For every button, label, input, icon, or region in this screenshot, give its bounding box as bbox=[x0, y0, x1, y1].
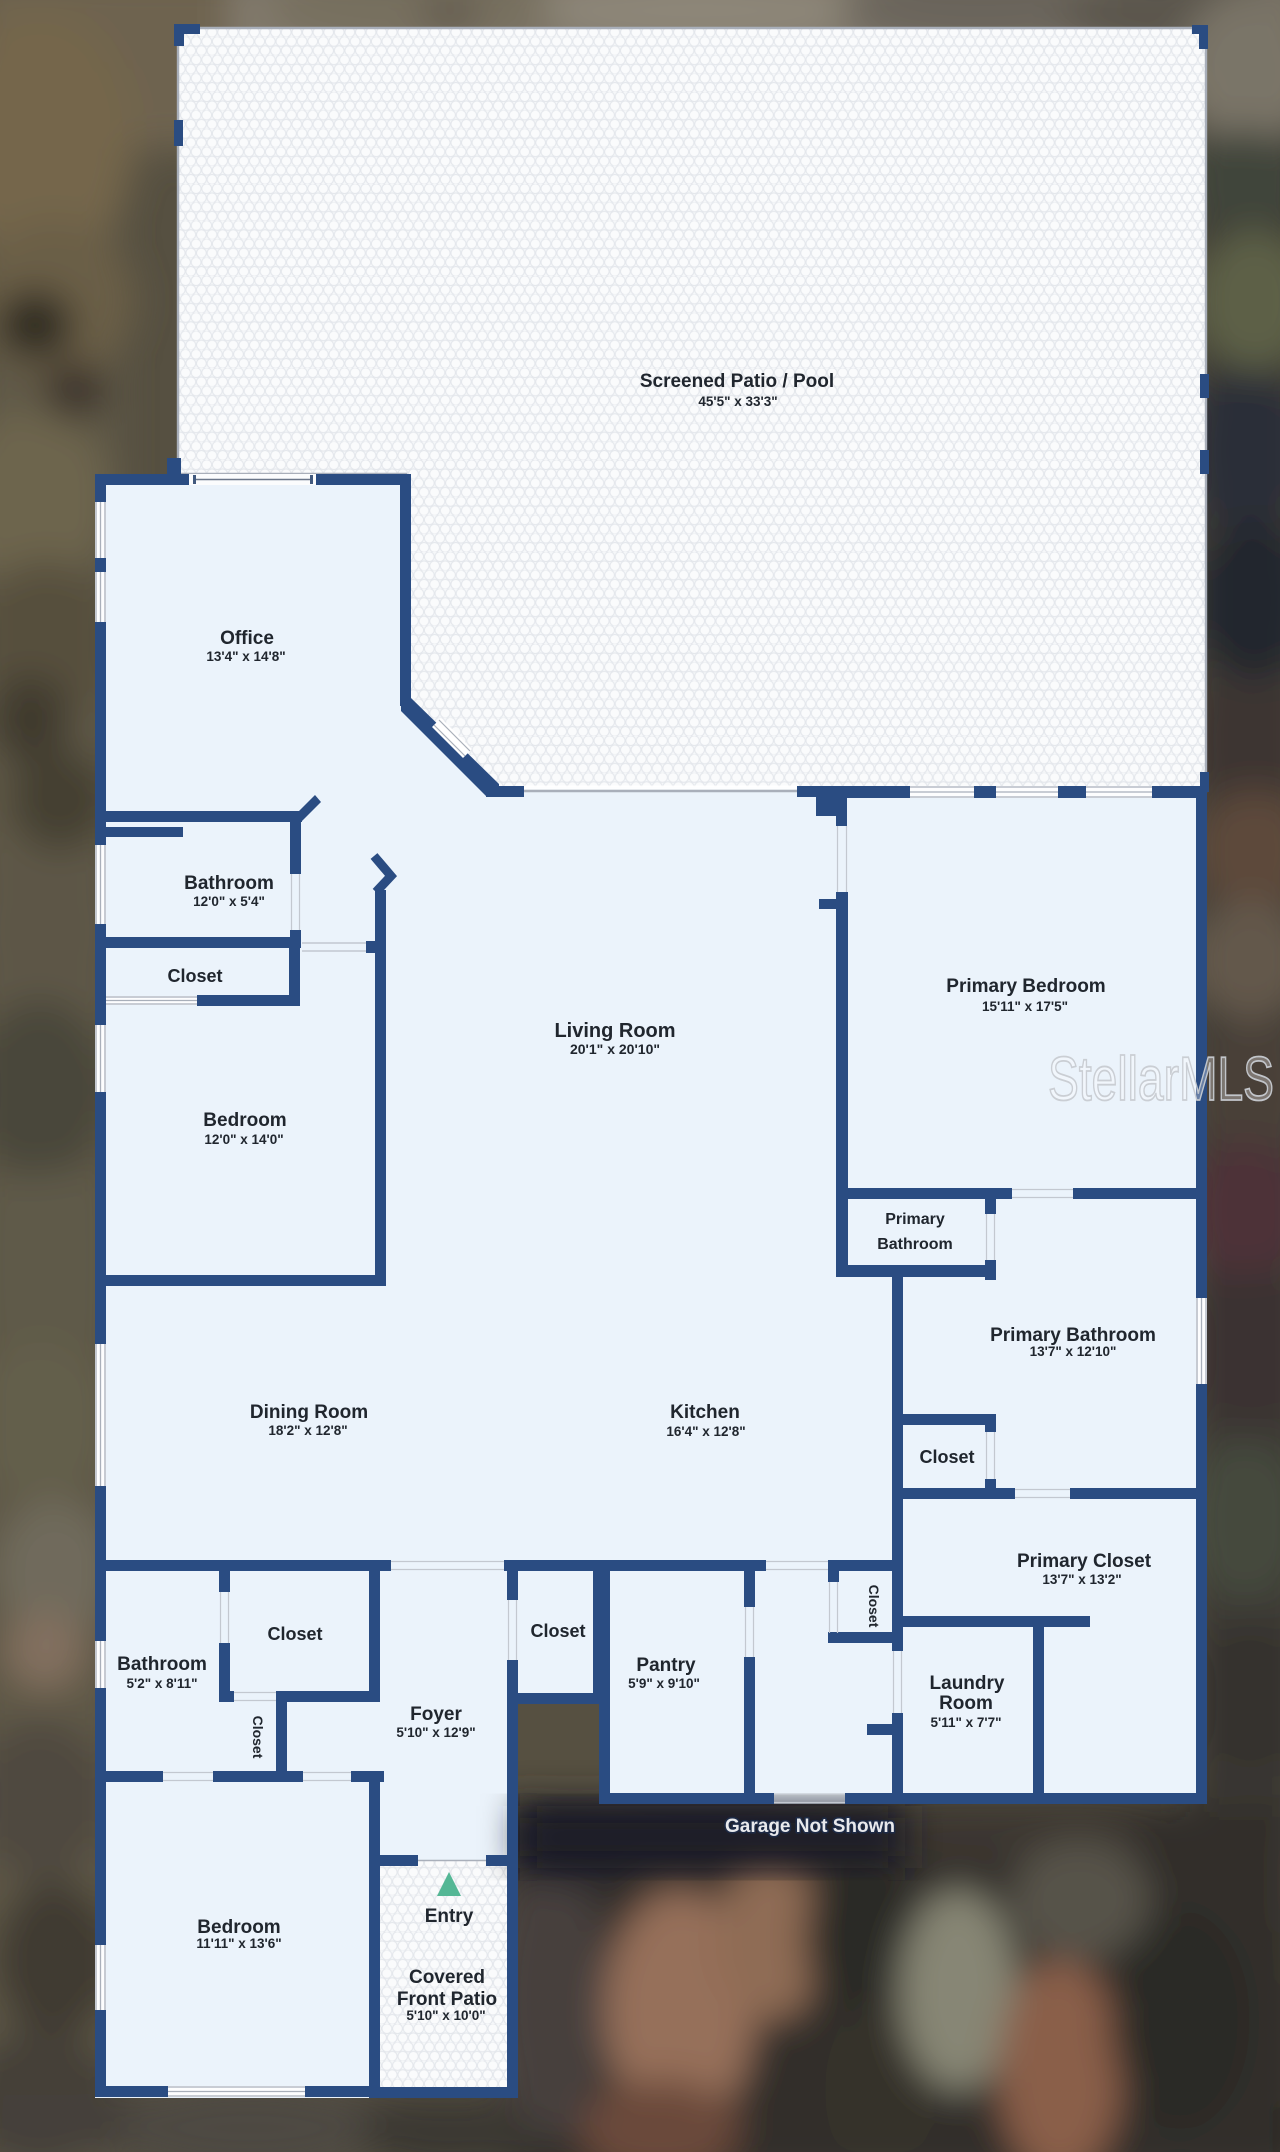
svg-text:Closet: Closet bbox=[167, 966, 222, 986]
svg-text:15'11" x 17'5": 15'11" x 17'5" bbox=[982, 999, 1068, 1014]
svg-text:13'7" x 13'2": 13'7" x 13'2" bbox=[1042, 1572, 1121, 1587]
svg-text:16'4" x 12'8": 16'4" x 12'8" bbox=[666, 1424, 745, 1439]
svg-text:Pantry: Pantry bbox=[636, 1655, 696, 1676]
svg-text:Closet: Closet bbox=[267, 1624, 322, 1644]
svg-text:Garage Not Shown: Garage Not Shown bbox=[725, 1816, 895, 1837]
svg-text:5'9" x 9'10": 5'9" x 9'10" bbox=[628, 1676, 700, 1691]
svg-text:Primary Bedroom: Primary Bedroom bbox=[946, 976, 1105, 997]
svg-text:Front Patio: Front Patio bbox=[397, 1989, 497, 2010]
svg-text:11'11" x 13'6": 11'11" x 13'6" bbox=[196, 1936, 281, 1951]
svg-text:Primary Closet: Primary Closet bbox=[1017, 1551, 1152, 1572]
svg-text:Bedroom: Bedroom bbox=[203, 1110, 286, 1131]
svg-text:13'7" x 12'10": 13'7" x 12'10" bbox=[1030, 1344, 1117, 1359]
svg-text:5'10" x 10'0": 5'10" x 10'0" bbox=[406, 2008, 485, 2023]
svg-text:Bedroom: Bedroom bbox=[197, 1917, 280, 1938]
svg-text:20'1" x 20'10": 20'1" x 20'10" bbox=[570, 1041, 660, 1057]
svg-text:Screened Patio / Pool: Screened Patio / Pool bbox=[640, 371, 834, 392]
svg-text:Office: Office bbox=[220, 628, 274, 649]
svg-text:5'10" x 12'9": 5'10" x 12'9" bbox=[396, 1725, 475, 1740]
svg-text:18'2" x 12'8": 18'2" x 12'8" bbox=[268, 1423, 347, 1438]
svg-text:Dining Room: Dining Room bbox=[250, 1402, 368, 1423]
svg-text:5'11" x 7'7": 5'11" x 7'7" bbox=[930, 1715, 1001, 1730]
svg-text:13'4" x 14'8": 13'4" x 14'8" bbox=[206, 649, 285, 664]
svg-text:Laundry: Laundry bbox=[930, 1673, 1005, 1694]
svg-text:Foyer: Foyer bbox=[410, 1704, 462, 1725]
svg-text:Bathroom: Bathroom bbox=[184, 873, 274, 894]
svg-text:Bathroom: Bathroom bbox=[117, 1654, 207, 1675]
svg-text:12'0" x 5'4": 12'0" x 5'4" bbox=[193, 894, 265, 909]
svg-text:Primary Bathroom: Primary Bathroom bbox=[990, 1325, 1156, 1346]
svg-text:Primary: Primary bbox=[885, 1211, 945, 1228]
svg-text:Closet: Closet bbox=[530, 1621, 585, 1641]
svg-text:Living Room: Living Room bbox=[554, 1020, 675, 1042]
svg-text:5'2" x 8'11": 5'2" x 8'11" bbox=[126, 1676, 197, 1691]
svg-text:Entry: Entry bbox=[425, 1906, 474, 1927]
svg-text:Bathroom: Bathroom bbox=[877, 1236, 953, 1253]
svg-text:12'0" x 14'0": 12'0" x 14'0" bbox=[204, 1132, 283, 1147]
svg-text:Closet: Closet bbox=[866, 1585, 882, 1628]
svg-text:Closet: Closet bbox=[919, 1447, 974, 1467]
svg-text:Covered: Covered bbox=[409, 1967, 485, 1988]
svg-text:Closet: Closet bbox=[250, 1716, 266, 1759]
svg-text:Room: Room bbox=[939, 1693, 993, 1714]
svg-text:StellarMLS: StellarMLS bbox=[1048, 1045, 1274, 1114]
svg-text:Kitchen: Kitchen bbox=[670, 1402, 740, 1423]
svg-text:45'5" x 33'3": 45'5" x 33'3" bbox=[698, 394, 777, 409]
